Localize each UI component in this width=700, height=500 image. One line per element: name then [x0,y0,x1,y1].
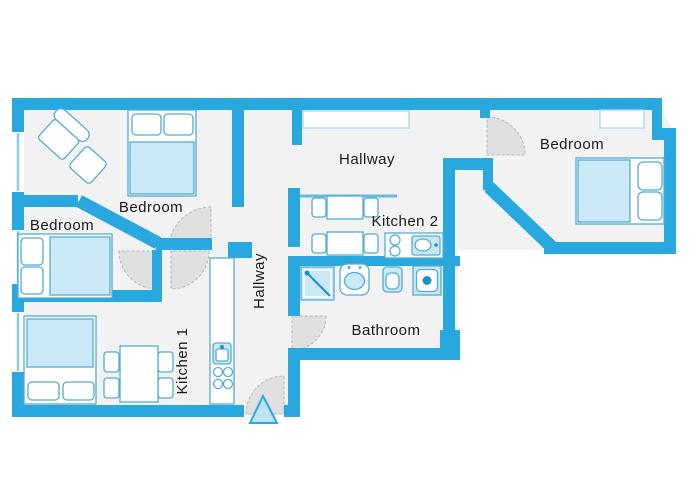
pillow-icon [164,114,193,135]
chair-icon [312,234,326,253]
double-bed-icon [576,158,664,224]
pillow-icon [21,238,43,265]
chair-icon [312,198,326,217]
kitchen-sink-icon [412,236,440,255]
wall-bathroom-bottom [288,348,446,360]
bed-blanket [578,160,630,222]
sink-bowl [216,349,228,361]
burner [224,380,233,389]
basin-tap [348,266,351,269]
wall-bathroom-notch [440,330,460,360]
chair-icon [104,352,119,372]
pillow-icon [132,114,161,135]
wall-nook [156,238,212,250]
table-top [327,196,363,219]
double-bed-icon [18,234,112,298]
sink-faucet [220,345,224,349]
shower-head [305,271,310,276]
wall-bedroom2-divider [152,250,162,302]
kitchen-counter-icon [385,233,443,258]
shower-icon [301,267,334,300]
table-top [120,346,158,402]
wall-hall-kitchen2-left [288,188,300,247]
chair-icon [104,378,119,398]
room-label-hallway-main: Hallway [251,253,268,309]
wall-junction-block [228,242,252,258]
basin-tap [359,266,362,269]
room-label-kitchen-2: Kitchen 2 [371,213,438,230]
wall-bathroom-right [443,158,455,334]
floor-plan-page: Bedroom Bedroom Bedroom Hallway Kitchen … [0,0,700,500]
washing-machine-icon [413,266,441,295]
bed-blanket [27,319,93,367]
pillow-icon [63,382,94,400]
wall-bedroom-right-bottom [544,242,676,254]
pillow-icon [28,382,59,400]
wall-bottom-left [12,405,244,417]
room-label-bathroom: Bathroom [351,322,420,339]
room-label-bedroom-top-left: Bedroom [119,199,183,216]
double-bed-icon [128,110,196,196]
toilet-seat [386,273,399,289]
wall-right [664,128,676,254]
burner [390,246,400,256]
pillow-icon [638,192,662,220]
room-label-bedroom-left: Bedroom [30,217,94,234]
sink-bowl [415,239,431,251]
wardrobe-icon [303,111,409,128]
bed-blanket [50,237,110,295]
room-label-bedroom-right: Bedroom [540,136,604,153]
room-label-hallway-top: Hallway [339,151,395,168]
toilet-icon [383,267,402,292]
wall-bedroom-right-door-stub [480,110,490,118]
dining-table-icon [312,232,378,255]
wall-hallway-left [232,110,244,207]
basin-bowl [345,273,365,290]
table-top [327,232,363,255]
floor-plan: Bedroom Bedroom Bedroom Hallway Kitchen … [0,0,700,500]
wall-tophall-left [292,110,302,145]
wall-bedrooms-left-h [12,195,78,207]
chair-icon [364,234,378,253]
pillow-icon [21,267,43,294]
bedroom-left-furniture [18,234,112,298]
wall-outer-entry [288,356,300,411]
kitchen-sink-icon [213,343,231,364]
double-bed-icon [24,316,96,404]
burner [224,368,233,377]
sink-faucet [434,243,438,247]
burner [214,380,223,389]
kitchen-counter-icon [210,258,234,404]
washer-drum [423,276,432,285]
room-label-kitchen-1: Kitchen 1 [174,327,191,394]
burner [390,235,400,245]
bed-blanket [130,142,194,194]
dining-table-icon [312,196,378,219]
chair-icon [158,378,173,398]
shelf-icon [600,110,644,128]
wall-left-a [12,98,24,132]
wall-top [12,98,662,110]
pillow-icon [638,162,662,190]
burner [214,368,223,377]
washbasin-icon [340,264,369,295]
chair-icon [158,352,173,372]
